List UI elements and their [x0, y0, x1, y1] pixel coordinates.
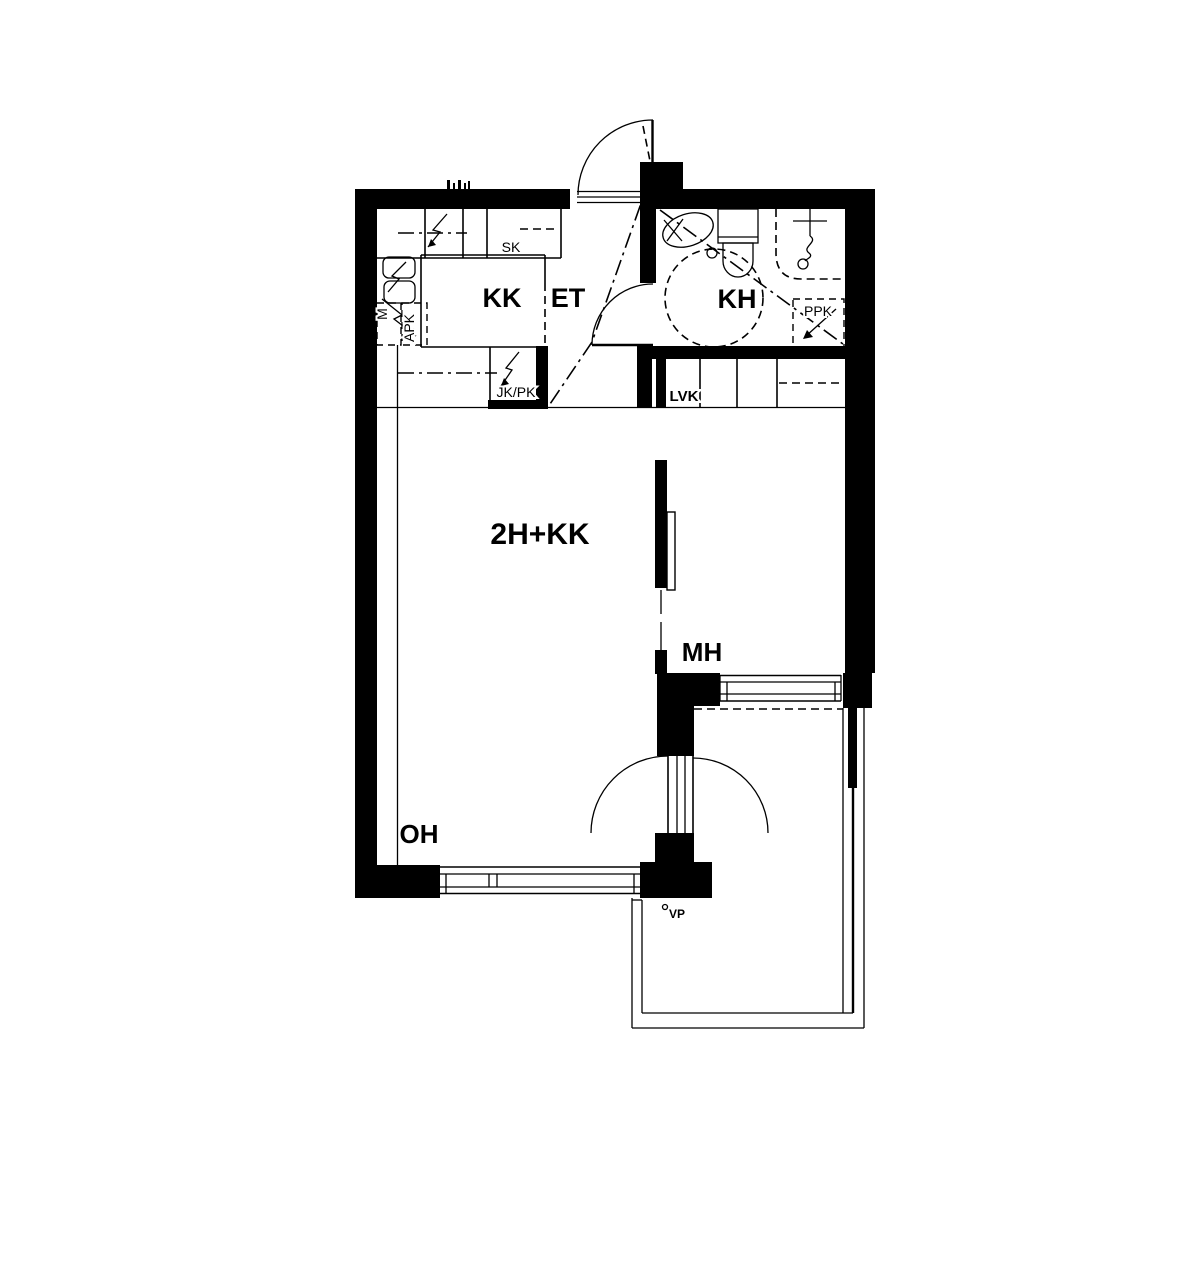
floor-plan-drawing: KK ET KH 2H+KK MH OH SK JK/PK M APK LVK …: [0, 0, 1193, 1272]
balcony-door: [591, 756, 768, 833]
label-apartment-type: 2H+KK: [490, 518, 590, 551]
label-entry: ET: [551, 283, 586, 313]
floor-plan-canvas: KK ET KH 2H+KK MH OH SK JK/PK M APK LVK …: [0, 0, 1193, 1272]
vp-degree-mark: [663, 905, 668, 910]
label-living-room: OH: [400, 819, 439, 849]
label-washer-reservation: PPK: [804, 303, 833, 319]
label-kitchenette: KK: [483, 283, 522, 313]
label-microwave: M: [374, 308, 390, 320]
closet-row-lvk: [700, 359, 840, 407]
fixture-labels: SK JK/PK M APK LVK PPK VP: [374, 239, 833, 921]
room-labels: KK ET KH 2H+KK MH OH: [400, 283, 757, 849]
label-bedroom: MH: [682, 637, 722, 667]
label-balcony-mark: VP: [669, 907, 685, 921]
label-dishwasher: APK: [401, 313, 417, 342]
label-linen-closet: LVK: [670, 388, 699, 405]
top-wall-tick-marks: [447, 180, 470, 189]
walls: [355, 162, 875, 898]
label-fridge-freezer: JK/PK: [497, 384, 537, 400]
living-room-window: [440, 867, 640, 894]
kitchen-cabinets: [377, 209, 845, 865]
label-bathroom: KH: [718, 284, 757, 314]
label-cabinet: SK: [502, 239, 521, 255]
bathroom-door: [592, 284, 653, 345]
